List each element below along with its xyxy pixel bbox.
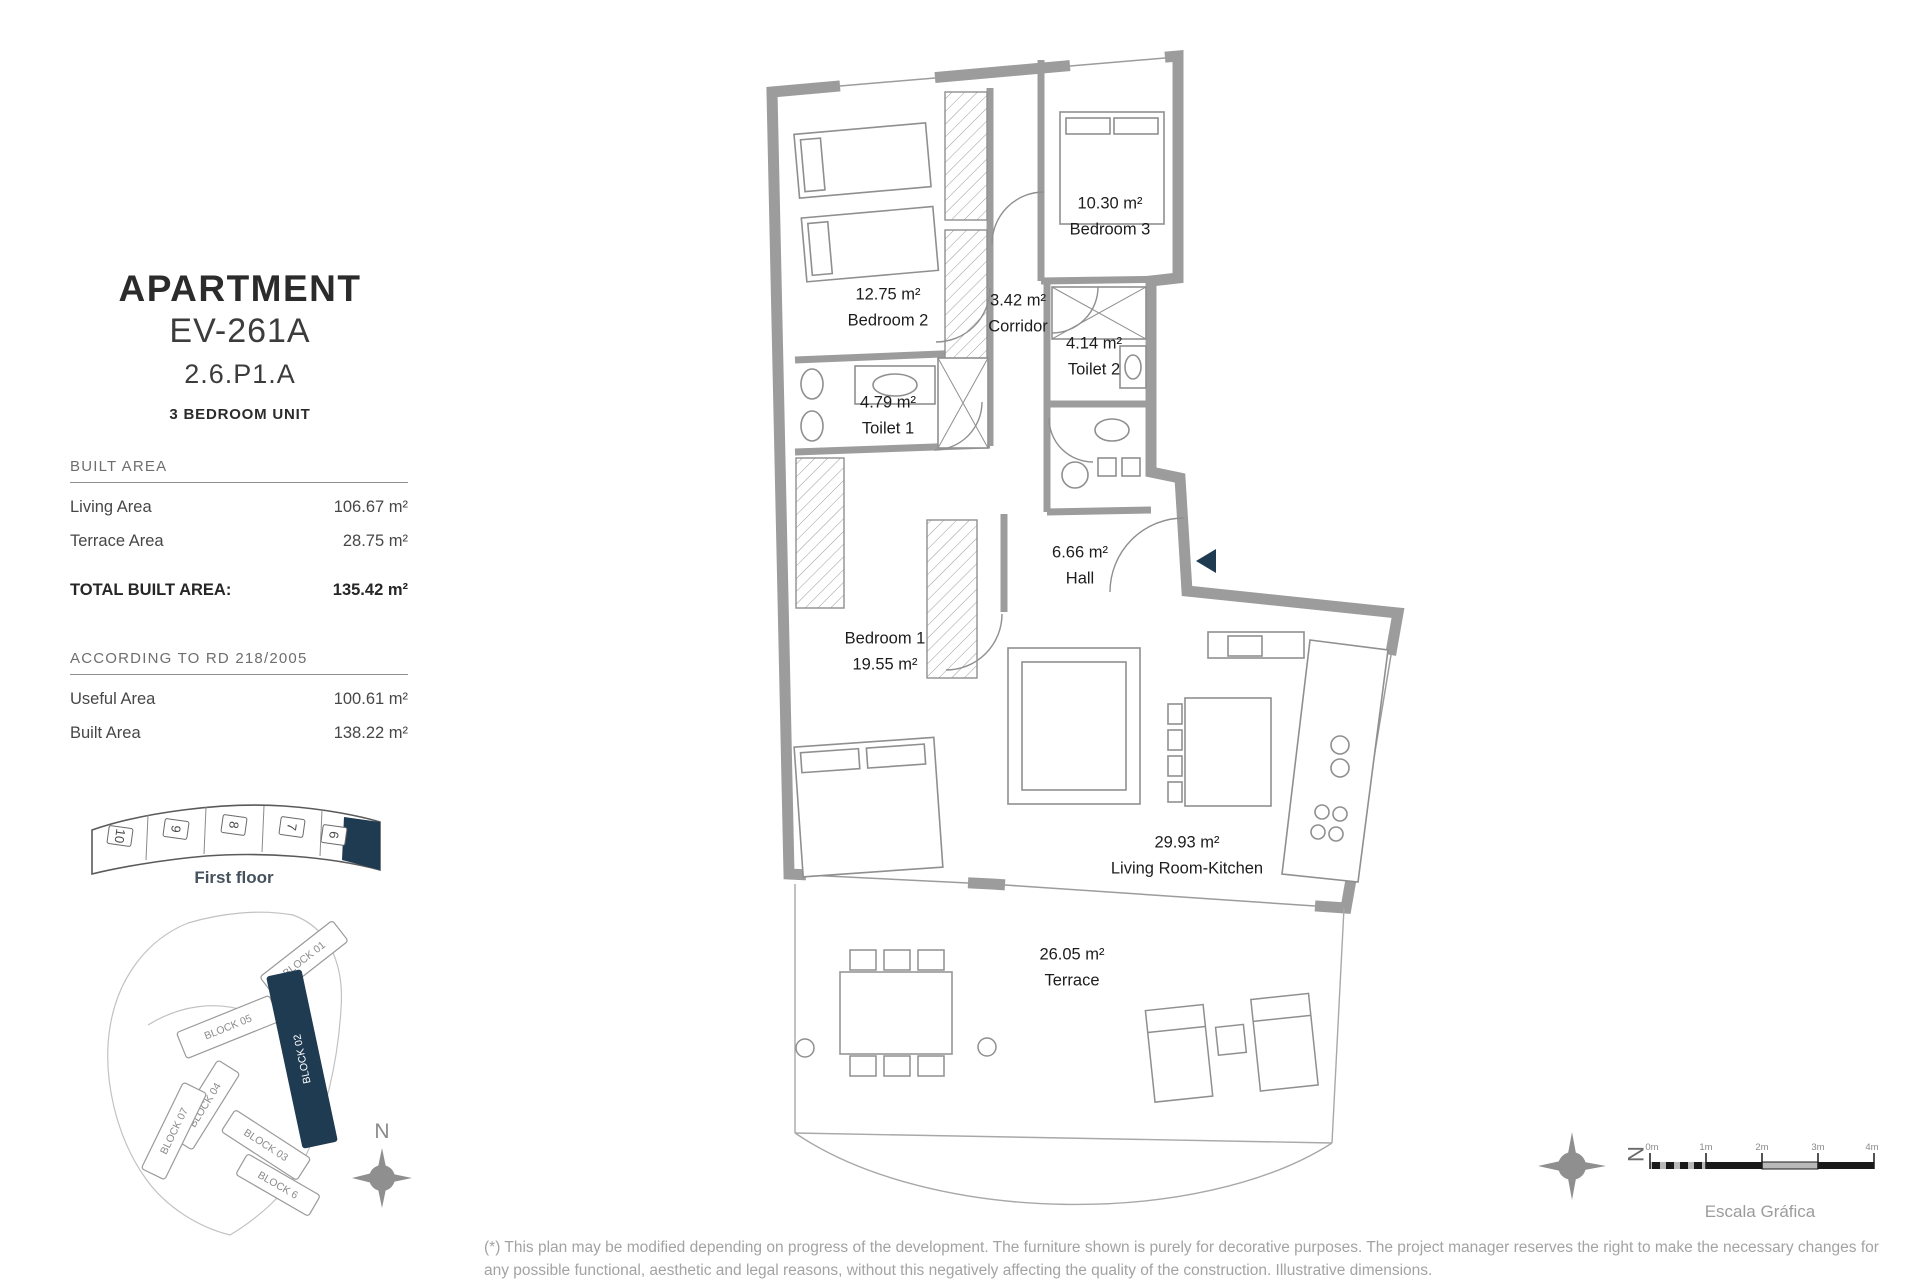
scale-tick: 3m (1811, 1142, 1824, 1153)
floor-plan-sheet: APARTMENT EV-261A 2.6.P1.A 3 BEDROOM UNI… (0, 0, 1920, 1280)
scale-tick: 1m (1699, 1142, 1712, 1153)
scale-tick: 4m (1865, 1142, 1878, 1153)
footer-disclaimer: (*) This plan may be modified depending … (484, 1236, 1892, 1280)
scale-bar: 0m 1m 2m 3m 4m (1640, 1138, 1890, 1190)
entrance-arrow-icon (1196, 549, 1216, 573)
compass-north-icon-bottom: N (1528, 1124, 1648, 1208)
terrace-furniture (796, 950, 1318, 1102)
scale-tick: 0m (1645, 1142, 1658, 1153)
scale-tick: 2m (1755, 1142, 1768, 1153)
floor-plan-drawing (0, 0, 1920, 1280)
furniture (794, 112, 1388, 882)
scale-bar-label: Escala Gráfica (1672, 1202, 1848, 1222)
